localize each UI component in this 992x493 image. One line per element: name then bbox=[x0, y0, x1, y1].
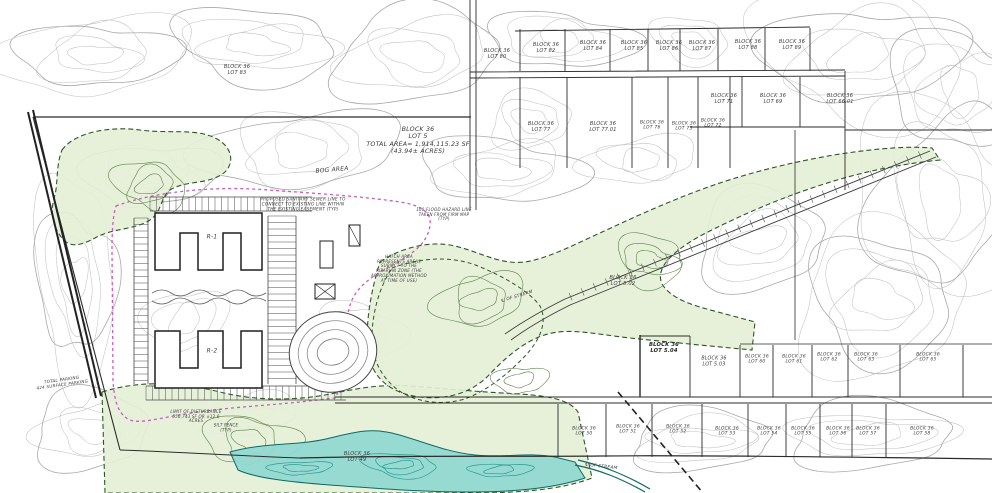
site-plan-canvas bbox=[0, 0, 992, 493]
site-plan-drawing: BLOCK 36 LOT 80BLOCK 36 LOT 82BLOCK 36 L… bbox=[0, 0, 992, 493]
courtyard-landscaping bbox=[152, 290, 266, 304]
pool-structure bbox=[320, 241, 333, 268]
building-r2-footprint bbox=[155, 331, 262, 388]
building-r1-footprint bbox=[155, 213, 262, 270]
